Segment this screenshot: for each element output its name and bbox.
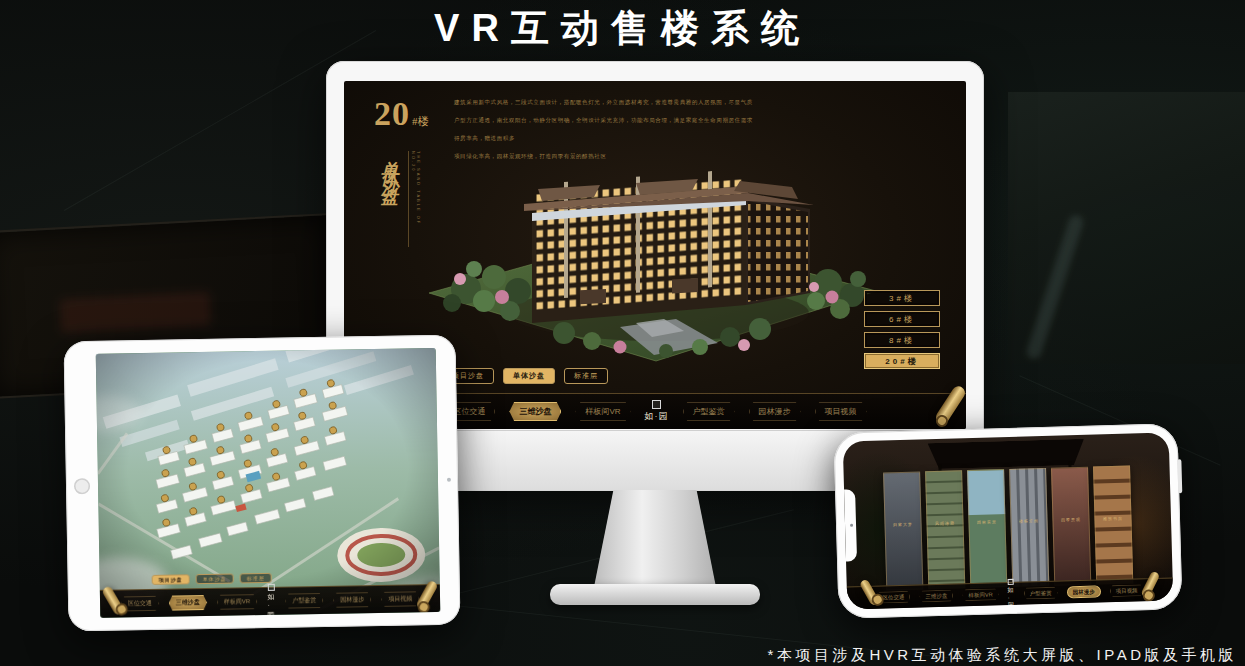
ipad-camera-icon xyxy=(447,478,451,482)
ipad-navbar: 区位交通 三维沙盘 样板间VR 如·园 户型鉴赏 园林漫步 项目视频 xyxy=(100,584,440,618)
gallery-caption: 雅致书房 xyxy=(1095,515,1130,521)
floor-button-8[interactable]: 8#楼 xyxy=(864,332,940,348)
gallery-card[interactable]: 风雨连廊 xyxy=(925,470,965,589)
ruyuan-logo: 如·园 xyxy=(267,583,276,618)
nav-item-3d-sandtable[interactable]: 三维沙盘 xyxy=(919,590,953,603)
ipad-tab-project-sandtable-selected[interactable]: 项目沙盘 xyxy=(152,574,190,585)
footnote: *本项目涉及HVR互动体验系统大屏版、IPAD版及手机版 xyxy=(768,646,1237,665)
ipad-tab-single-sandtable[interactable]: 单体沙盘 xyxy=(196,574,234,585)
pergola-silhouette xyxy=(928,439,1085,469)
nav-item-floorplans[interactable]: 户型鉴赏 xyxy=(683,402,735,421)
nav-item-garden-walk[interactable]: 园林漫步 xyxy=(749,402,801,421)
nav-item-garden-walk[interactable]: 园林漫步 xyxy=(333,592,371,608)
phone-mockup: 归家大堂 风雨连廊 园林实景 楼栋立面 四季景观 雅致书房 区位交通 三维沙盘 … xyxy=(833,423,1182,619)
nav-item-floorplans[interactable]: 户型鉴赏 xyxy=(285,593,323,609)
logo-seal-icon xyxy=(267,583,274,590)
sandtable-mode-tabs: 项目沙盘 单体沙盘 标准层 xyxy=(442,368,608,384)
nav-item-showroom-vr[interactable]: 样板间VR xyxy=(962,588,998,601)
floor-button-20-selected[interactable]: 20#楼 xyxy=(864,353,940,369)
ipad-sandtable-mode-tabs: 项目沙盘 单体沙盘 标准层 xyxy=(152,573,272,585)
nav-item-garden-walk-selected[interactable]: 园林漫步 xyxy=(1066,585,1100,598)
gallery-card[interactable]: 园林实景 xyxy=(967,469,1007,588)
logo-seal-icon xyxy=(652,400,661,409)
gallery-caption: 风雨连廊 xyxy=(927,520,962,526)
nav-item-project-video[interactable]: 项目视频 xyxy=(1109,584,1143,597)
tab-single-sandtable-selected[interactable]: 单体沙盘 xyxy=(503,368,555,384)
logo-text: 如·园 xyxy=(267,591,275,618)
gallery-card[interactable]: 雅致书房 xyxy=(1093,466,1133,585)
scene-gallery: 归家大堂 风雨连廊 园林实景 楼栋立面 四季景观 雅致书房 xyxy=(883,466,1133,591)
block-number-title: 20#楼 xyxy=(374,95,429,133)
ruyuan-logo: 如·园 xyxy=(645,400,669,423)
block-number-suffix: #楼 xyxy=(412,115,429,127)
nav-item-3d-sandtable-selected[interactable]: 三维沙盘 xyxy=(509,402,561,421)
floor-button-6[interactable]: 6#楼 xyxy=(864,311,940,327)
nav-item-showroom-vr[interactable]: 样板间VR xyxy=(217,594,258,610)
background-aerial-photo xyxy=(1008,92,1245,364)
gallery-caption: 楼栋立面 xyxy=(1011,518,1046,524)
gallery-caption: 归家大堂 xyxy=(885,521,920,527)
gallery-card[interactable]: 四季景观 xyxy=(1051,467,1091,586)
phone-notch xyxy=(844,489,857,561)
gallery-caption: 园林实景 xyxy=(969,519,1004,525)
monitor-stand-base xyxy=(550,584,760,605)
trees-right xyxy=(807,269,866,319)
logo-seal-icon xyxy=(1008,578,1014,584)
logo-text: 如·园 xyxy=(1007,585,1015,609)
logo-text: 如·园 xyxy=(645,410,669,423)
tab-standard-floor[interactable]: 标准层 xyxy=(564,368,608,384)
nav-item-3d-sandtable-selected[interactable]: 三维沙盘 xyxy=(169,595,207,611)
gallery-card[interactable]: 楼栋立面 xyxy=(1009,468,1049,587)
gallery-card[interactable]: 归家大堂 xyxy=(883,471,923,590)
monitor-stand-neck xyxy=(575,490,735,586)
ipad-tab-standard-floor[interactable]: 标准层 xyxy=(240,573,272,584)
nav-item-project-video[interactable]: 项目视频 xyxy=(815,402,867,421)
block-vertical-title: 单体沙盘 xyxy=(378,147,401,183)
gallery-caption: 四季景观 xyxy=(1053,516,1088,522)
ipad-home-button[interactable] xyxy=(74,478,90,494)
floor-button-group: 3#楼 6#楼 8#楼 20#楼 xyxy=(864,290,940,369)
nav-item-floorplans[interactable]: 户型鉴赏 xyxy=(1023,587,1057,600)
description-line: 户型方正通透，南北双阳台，动静分区明确，全明设计采光充沛，功能布局合理，满足家庭… xyxy=(454,115,859,126)
ruyuan-logo: 如·园 xyxy=(1007,578,1015,609)
description-line: 建筑采用新中式风格，三段式立面设计，搭配暖色灯光，外立面选材考究，营造尊贵典雅的… xyxy=(454,97,859,108)
floor-button-3[interactable]: 3#楼 xyxy=(864,290,940,306)
ipad-screen: 项目沙盘 单体沙盘 标准层 区位交通 三维沙盘 样板间VR 如·园 户型鉴赏 园… xyxy=(96,348,441,618)
phone-screen: 归家大堂 风雨连廊 园林实景 楼栋立面 四季景观 雅致书房 区位交通 三维沙盘 … xyxy=(843,432,1174,609)
ipad-mockup: 项目沙盘 单体沙盘 标准层 区位交通 三维沙盘 样板间VR 如·园 户型鉴赏 园… xyxy=(63,335,460,632)
nav-item-showroom-vr[interactable]: 样板间VR xyxy=(575,402,630,421)
page-title: VR互动售楼系统 xyxy=(0,3,1245,54)
building-3d-render[interactable] xyxy=(414,141,894,379)
block-number: 20 xyxy=(374,95,410,132)
nav-item-project-video[interactable]: 项目视频 xyxy=(381,591,419,607)
